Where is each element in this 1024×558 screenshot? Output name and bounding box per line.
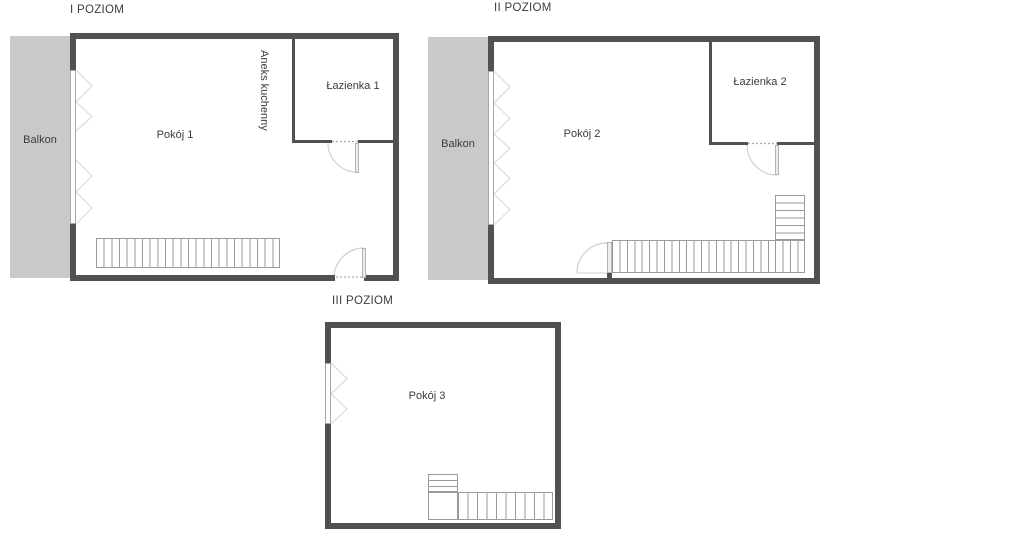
floorplan-canvas: I POZIOM [0,0,1024,558]
level-3-stairs-upper [428,474,458,492]
level-3-stairs-landing [428,492,458,520]
level-3-wall-top [325,322,561,328]
level-3-wall-left-upper [325,322,331,363]
level-3-symbols [0,0,1024,558]
level-3-window [325,363,331,424]
level-3-wall-right [555,322,561,529]
level-3-wall-left-lower [325,424,331,529]
window-casement-triangle [331,394,347,424]
level-3-stairs-run [458,492,553,520]
level-3-plan: III POZIOM Pokój 3 [0,0,1024,558]
level-3-room-label: Pokój 3 [387,390,467,403]
window-casement-triangle [331,363,347,394]
level-3-wall-bottom [325,523,561,529]
level-3-title: III POZIOM [332,295,393,308]
